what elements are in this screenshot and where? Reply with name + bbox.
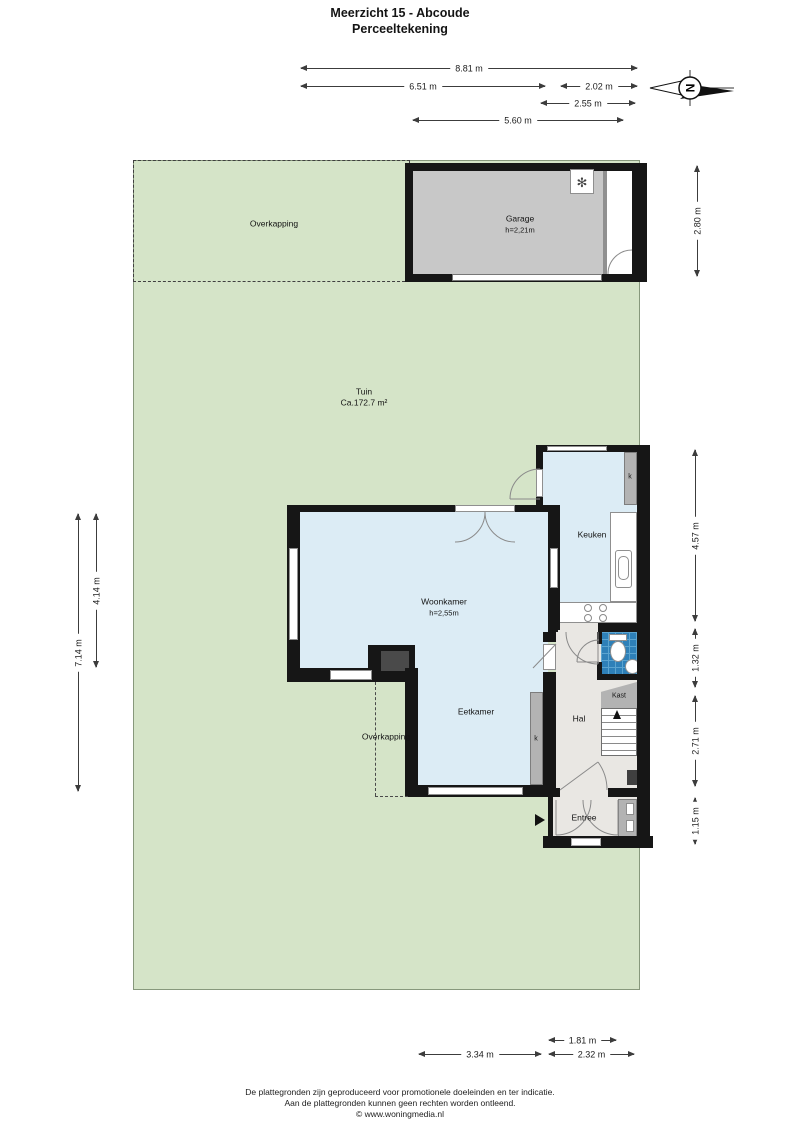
stove-burner-icon — [584, 604, 592, 612]
tuin-label: Tuin — [356, 387, 372, 398]
hal-label: Hal — [573, 714, 586, 725]
wall-segment — [548, 623, 558, 632]
compass-icon: N — [646, 58, 738, 120]
overkapping-bottom-label: Overkapping — [362, 732, 410, 743]
footer-line-1: De plattegronden zijn geproduceerd voor … — [0, 1088, 800, 1097]
floorplan-canvas: Meerzicht 15 - Abcoude Perceeltekening O… — [0, 0, 800, 1131]
wall-segment — [548, 788, 560, 797]
dim-bottom-3: 2.32 m — [548, 1050, 635, 1059]
garage-label: Garage — [506, 214, 534, 225]
dim-right-2: 1.32 m — [691, 628, 700, 688]
dim-bottom-1: 1.81 m — [548, 1036, 617, 1045]
dim-label: 1.32 m — [691, 639, 700, 677]
sink-basin-icon — [618, 556, 629, 580]
dim-top-3: 2.02 m — [560, 82, 638, 91]
dim-left-1: 7.14 m — [74, 513, 83, 792]
meter-fixture — [626, 803, 634, 815]
woonkamer-height-label: h=2,55m — [429, 608, 458, 617]
woonkamer-floor — [300, 512, 548, 668]
wall-segment — [608, 788, 650, 797]
dim-top-2: 6.51 m — [300, 82, 546, 91]
dim-top-1: 8.81 m — [300, 64, 638, 73]
eetkamer-closet-label: k — [534, 736, 538, 745]
dim-label: 2.55 m — [569, 99, 607, 108]
toilet-tank-icon — [609, 634, 627, 641]
footer-line-2: Aan de plattegronden kunnen geen rechten… — [0, 1099, 800, 1108]
stove-burner-icon — [584, 614, 592, 622]
page-title: Meerzicht 15 - Abcoude — [0, 6, 800, 20]
stove-burner-icon — [599, 614, 607, 622]
keuken-closet-label: k — [628, 474, 632, 483]
window — [330, 670, 372, 680]
dim-label: 4.57 m — [691, 517, 700, 555]
entrance-arrow-icon — [535, 814, 545, 826]
wall-segment — [543, 632, 556, 642]
eetkamer-floor — [418, 668, 548, 786]
interior-door — [543, 644, 556, 670]
tuin-area-label: Ca.172.7 m² — [341, 398, 388, 409]
dim-label: 5.60 m — [499, 116, 537, 125]
stove-counter — [556, 602, 637, 623]
dim-label: 2.32 m — [573, 1050, 611, 1059]
wall-segment — [287, 505, 455, 512]
dim-right-1: 4.57 m — [691, 449, 700, 622]
interior-window — [550, 548, 558, 588]
ventilation-unit-icon: ✻ — [570, 169, 594, 194]
footer-line-3: © www.woningmedia.nl — [0, 1110, 800, 1119]
wall-segment — [598, 623, 650, 632]
kast-label: Kast — [612, 693, 626, 702]
dim-right-garage: 2.80 m — [693, 165, 702, 277]
dim-right-4: 1.15 m — [691, 797, 700, 845]
wall-segment — [548, 797, 553, 838]
dim-label: 2.02 m — [580, 82, 618, 91]
dim-label: 1.81 m — [564, 1036, 602, 1045]
keuken-label: Keuken — [578, 530, 607, 541]
dim-left-2: 4.14 m — [92, 513, 101, 668]
garage-height-label: h=2,21m — [505, 225, 534, 234]
wall-segment — [597, 632, 602, 644]
double-door — [455, 505, 515, 512]
window — [547, 446, 607, 451]
dim-bottom-2: 3.34 m — [418, 1050, 542, 1059]
garage-door — [452, 274, 602, 281]
meter-fixture — [626, 820, 634, 832]
front-door — [571, 838, 601, 846]
keuken-floor — [543, 452, 637, 505]
garage-side-passage — [607, 171, 632, 274]
eetkamer-label: Eetkamer — [458, 707, 494, 718]
wall-segment — [597, 674, 637, 680]
garden-door — [536, 469, 543, 497]
stairs-up-arrow-icon — [613, 710, 621, 719]
overkapping-top-label: Overkapping — [250, 219, 298, 230]
dim-label: 7.14 m — [74, 634, 83, 672]
window — [289, 548, 298, 640]
compass-north-label: N — [683, 84, 697, 93]
stove-burner-icon — [599, 604, 607, 612]
wall-segment — [515, 505, 560, 512]
dim-label: 4.14 m — [92, 572, 101, 610]
woonkamer-label: Woonkamer — [421, 597, 467, 608]
dim-label: 2.71 m — [691, 722, 700, 760]
dim-label: 2.80 m — [693, 202, 702, 240]
overkapping-bottom-boundary — [375, 796, 408, 797]
dim-label: 6.51 m — [404, 82, 442, 91]
dim-top-4: 2.55 m — [540, 99, 636, 108]
dim-label: 3.34 m — [461, 1050, 499, 1059]
dim-label: 1.15 m — [691, 802, 700, 840]
wall-segment — [536, 452, 543, 469]
entree-label: Entree — [571, 813, 596, 824]
page-subtitle: Perceeltekening — [0, 22, 800, 36]
dim-top-5: 5.60 m — [412, 116, 624, 125]
dim-label: 8.81 m — [450, 64, 488, 73]
window — [428, 787, 523, 795]
dim-right-3: 2.71 m — [691, 695, 700, 787]
toilet-icon — [610, 641, 626, 662]
wall-segment — [543, 672, 556, 797]
